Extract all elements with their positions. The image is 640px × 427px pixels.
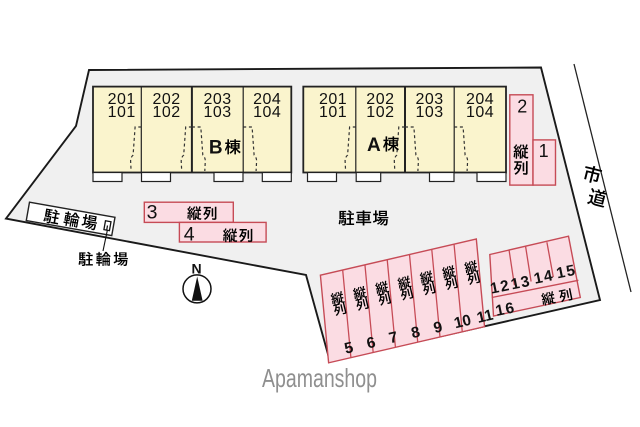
svg-text:3: 3 (147, 201, 158, 223)
svg-text:104: 104 (466, 104, 494, 121)
svg-text:2: 2 (517, 96, 527, 116)
svg-text:4: 4 (184, 224, 195, 246)
svg-text:Apamanshop: Apamanshop (262, 363, 377, 393)
svg-text:104: 104 (253, 104, 281, 121)
svg-text:102: 102 (152, 104, 180, 121)
svg-text:B: B (209, 138, 223, 159)
svg-text:1: 1 (539, 141, 549, 161)
svg-text:103: 103 (203, 104, 231, 121)
svg-text:101: 101 (108, 104, 136, 121)
svg-text:A: A (367, 135, 381, 156)
svg-text:103: 103 (415, 104, 443, 121)
svg-text:101: 101 (319, 104, 347, 121)
svg-text:102: 102 (366, 104, 394, 121)
